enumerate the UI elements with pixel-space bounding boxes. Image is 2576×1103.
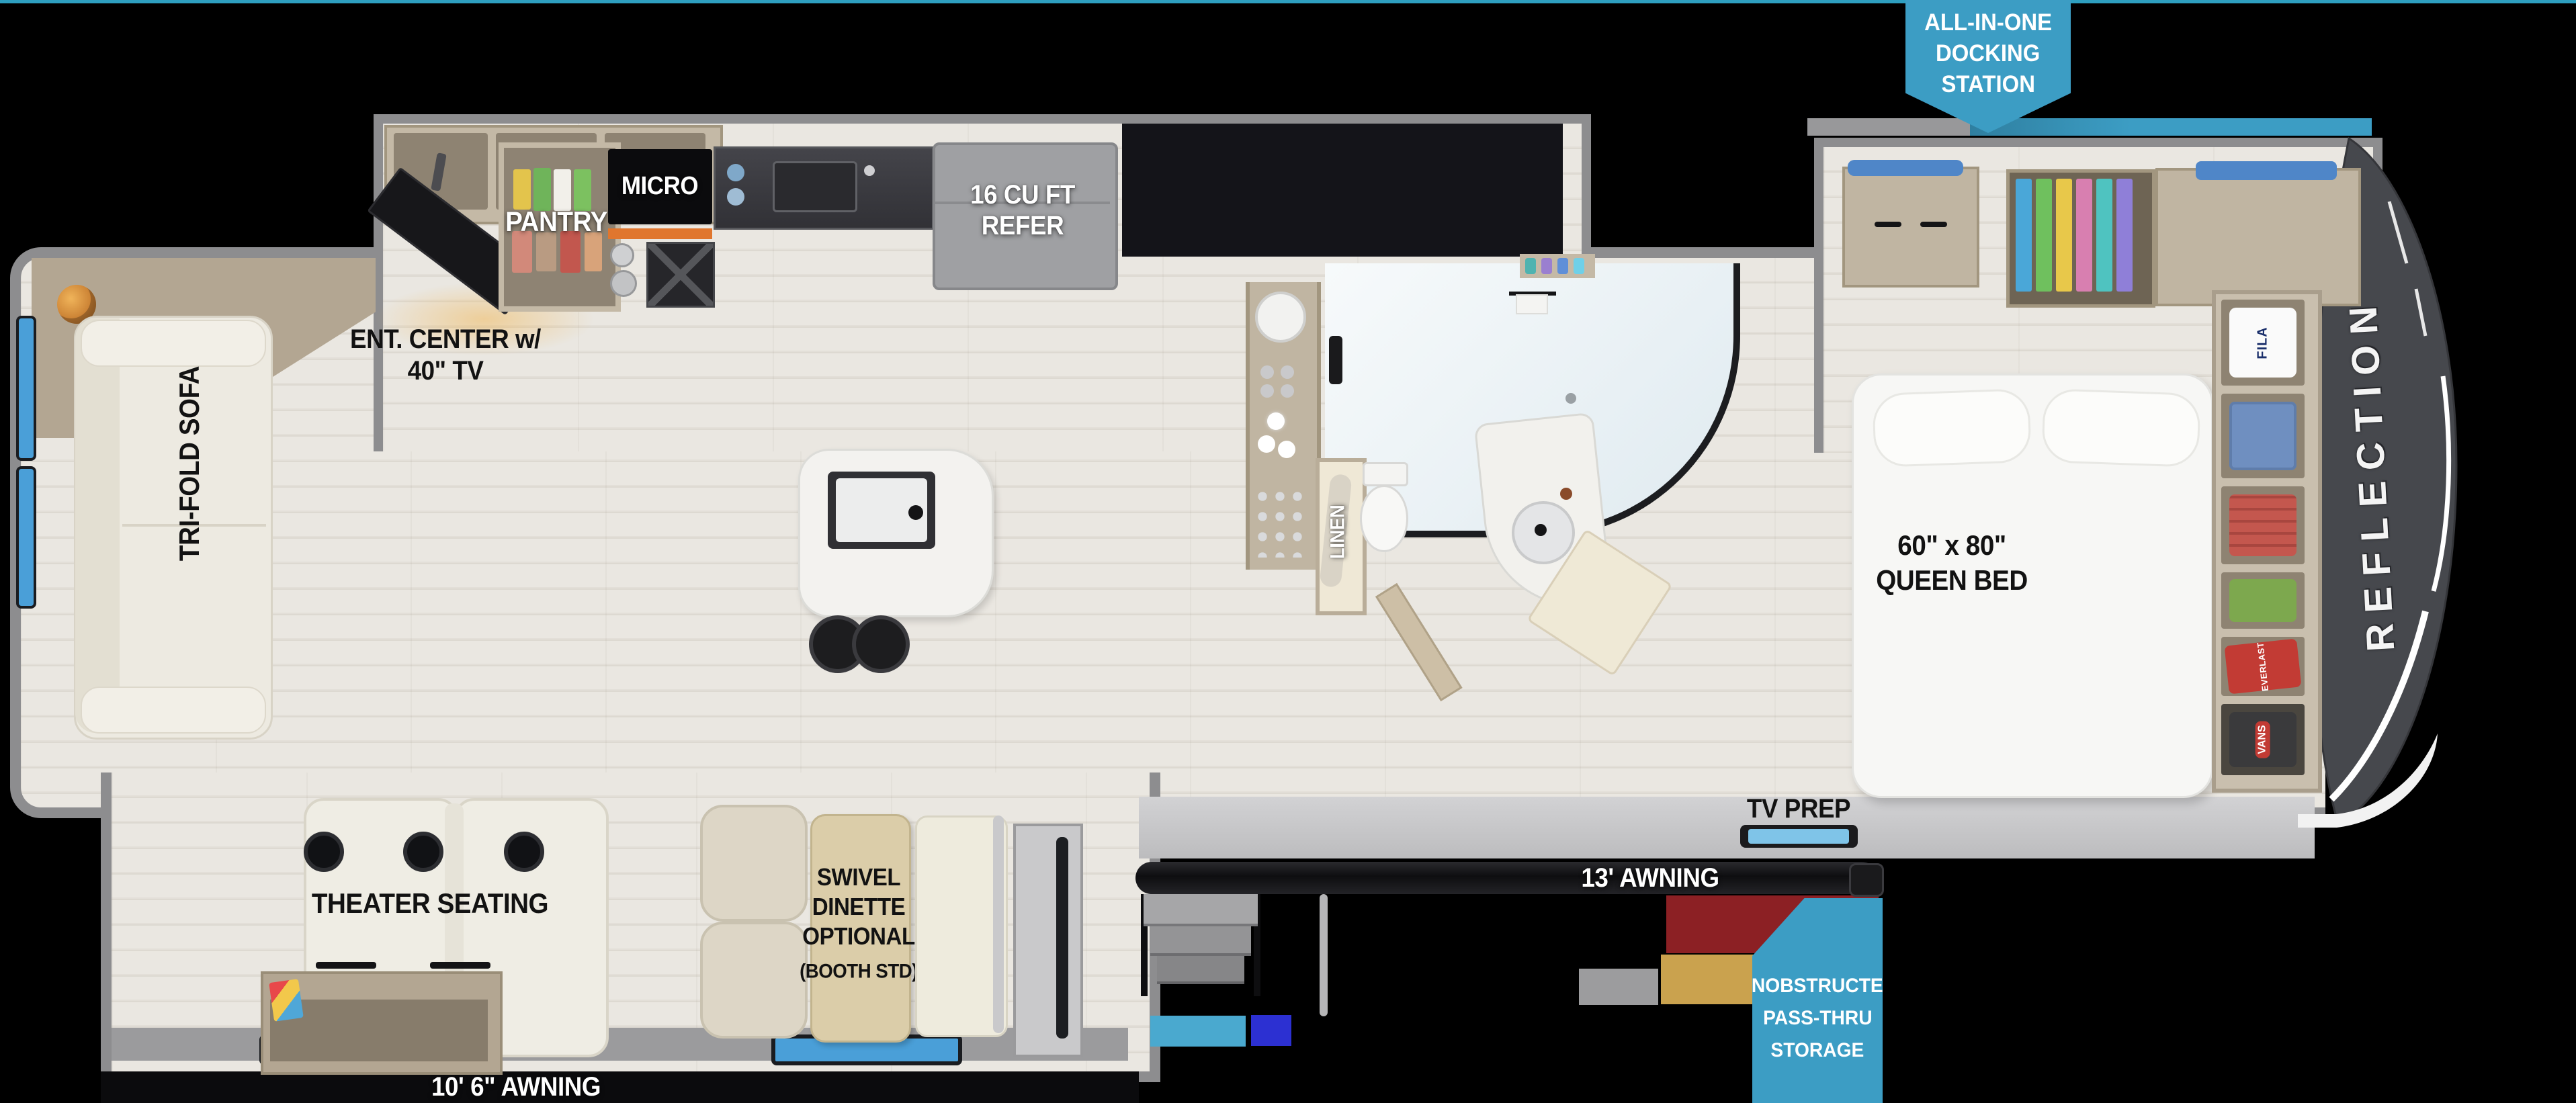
cup-holder-3 (504, 832, 544, 872)
console-handle-2 (430, 962, 490, 969)
pantry-item (533, 168, 551, 211)
galley-round-sink (1255, 292, 1306, 343)
linen-label: LINEN (1327, 505, 1348, 560)
everlast-logo: EVERLAST (2256, 642, 2271, 692)
rear-window-lower (16, 466, 36, 609)
pantry-item (585, 232, 602, 271)
hanging-clothes (2036, 179, 2052, 292)
top-accent-line (0, 0, 2576, 3)
pantry-label: PANTRY (505, 207, 607, 236)
vans-logo: VANS (2256, 721, 2270, 758)
toiletry-bottle-1 (1525, 258, 1536, 274)
pass-thru-ledge (1139, 797, 2315, 858)
booth-bench-trim (993, 815, 1004, 1033)
dresser-handle-2 (1920, 222, 1947, 227)
storage-item-gray (1579, 969, 1658, 1005)
hanging-clothes (2116, 179, 2133, 292)
pantry-item (574, 169, 591, 211)
refer-label-1: 16 CU FT (970, 181, 1075, 209)
toilet-tank (1363, 462, 1408, 486)
hanging-clothes (2016, 179, 2032, 292)
pantry-item (512, 231, 532, 273)
sofa-arm-bottom (81, 687, 266, 734)
ent-center-label-2: 40" TV (408, 357, 484, 385)
counter-dish-1 (727, 164, 744, 181)
dinette-chair-2 (700, 922, 808, 1039)
galley-glassware (1254, 488, 1306, 558)
storage-item-gold (1661, 955, 1756, 1004)
main-awning-end-cap (1849, 863, 1884, 897)
range-hood-accent (608, 228, 712, 239)
console-handle-1 (316, 962, 376, 969)
console-shelf (270, 1000, 488, 1061)
storage-item-dark-blue (1251, 1015, 1291, 1046)
dresser-handle-1 (1875, 222, 1901, 227)
tv-prep-tablet-screen (1748, 829, 1849, 844)
galley-knob-4 (1281, 384, 1294, 398)
kitchen-slideout-window-band (1122, 124, 1563, 257)
hanging-clothes (2056, 179, 2072, 292)
fila-logo: FILA (2256, 326, 2271, 359)
card-game-box (269, 979, 304, 1022)
galley-burner-1 (1267, 412, 1285, 430)
bed-pillow-1 (1872, 388, 2032, 468)
entry-step-2 (1150, 926, 1251, 956)
everlast-bag: EVERLAST (2225, 639, 2302, 695)
entry-step-3 (1157, 956, 1244, 984)
bed-pillow-2 (2041, 388, 2201, 468)
rear-window-upper (16, 316, 36, 461)
storage-item-light-blue (1150, 1016, 1246, 1047)
sofa-label: TRI-FOLD SOFA (175, 366, 204, 561)
pass-thru-line-1: UNOBSTRUCTED (1738, 975, 1897, 998)
galley-knob-1 (1260, 365, 1274, 379)
galley-knob-3 (1260, 384, 1274, 398)
pass-thru-line-2: PASS-THRU (1763, 1007, 1872, 1030)
toiletry-bottle-3 (1557, 258, 1568, 274)
dinette-label-3: OPTIONAL (802, 924, 914, 949)
bedroom-cabinet-right (2155, 168, 2361, 306)
toilet-bowl (1360, 485, 1408, 552)
pantry-item (513, 169, 531, 210)
galley-burner-3 (1278, 441, 1295, 458)
shower-drain (1565, 393, 1576, 404)
cooktop-grate (646, 242, 715, 308)
slide-awning-band (101, 1071, 1139, 1103)
main-awning-tube (1135, 862, 1878, 894)
floorplan-canvas: 10' 6" AWNING TV PREP 13' AWNING UNOBSTR… (0, 0, 2576, 1103)
kitchen-faucet (864, 165, 875, 176)
dresser-runner (1848, 160, 1963, 176)
theater-seating-label: THEATER SEATING (312, 889, 548, 918)
cabinet-blue-bin (2196, 161, 2337, 180)
grab-handle-post (1320, 894, 1328, 1016)
bedroom-slide-topper-gray (1807, 118, 1970, 136)
tv-prep-label: TV PREP (1747, 795, 1850, 823)
pass-thru-line-3: STORAGE (1771, 1039, 1864, 1062)
docking-station-callout: ALL-IN-ONE DOCKING STATION (1905, 0, 2071, 133)
galley-knob-2 (1281, 365, 1294, 379)
cup-holder-2 (403, 832, 443, 872)
bedroom-dresser (1842, 167, 1979, 288)
kitchen-counter-sink (773, 161, 857, 212)
green-sweater (2229, 579, 2296, 622)
entry-door-window (1056, 837, 1068, 1039)
shower-head (1329, 336, 1342, 384)
fila-shirt: FILA (2229, 308, 2296, 378)
sofa-back-band (75, 318, 120, 733)
micro-label: MICRO (621, 173, 698, 200)
docking-line-2: DOCKING (1936, 40, 2040, 67)
vanity-faucet (1560, 488, 1572, 500)
cup-holder-1 (304, 832, 344, 872)
cooktop-pot-1 (610, 270, 637, 297)
entry-door-panel (1013, 824, 1083, 1057)
dinette-label-1: SWIVEL (817, 865, 900, 890)
docking-line-3: STATION (1941, 71, 2035, 98)
main-awning-label: 13' AWNING (1581, 864, 1719, 892)
galley-burner-2 (1258, 435, 1275, 453)
entry-step-1 (1144, 894, 1258, 926)
dinette-chair-1 (700, 805, 808, 922)
cooktop-pot-2 (610, 243, 634, 267)
island-faucet (908, 505, 923, 520)
toiletry-bottle-2 (1541, 258, 1552, 274)
queen-bed-label-2: QUEEN BED (1876, 566, 2028, 595)
bar-stool-2 (852, 615, 910, 673)
ent-center-label-1: ENT. CENTER w/ (350, 325, 541, 353)
folded-jeans (2229, 402, 2296, 470)
hanging-clothes (2076, 179, 2092, 292)
pantry-item (560, 231, 581, 273)
vans-shirt: VANS (2229, 712, 2296, 767)
pantry-item (536, 232, 556, 271)
dinette-label-2: DINETTE (812, 894, 905, 920)
toiletry-bottle-4 (1574, 258, 1584, 274)
plaid-shirt (2229, 494, 2296, 556)
vanity-drain (1535, 524, 1547, 536)
queen-bed-label-1: 60" x 80" (1897, 531, 2006, 560)
docking-line-1: ALL-IN-ONE (1924, 9, 2052, 36)
towel (1516, 294, 1548, 314)
sofa-arm-top (81, 320, 266, 367)
pantry-item (554, 169, 571, 211)
hanging-clothes (2096, 179, 2112, 292)
slide-awning-label: 10' 6" AWNING (431, 1073, 601, 1101)
counter-dish-2 (727, 188, 744, 206)
dinette-label-4: (BOOTH STD) (800, 961, 918, 982)
refer-label-2: REFER (982, 212, 1064, 240)
